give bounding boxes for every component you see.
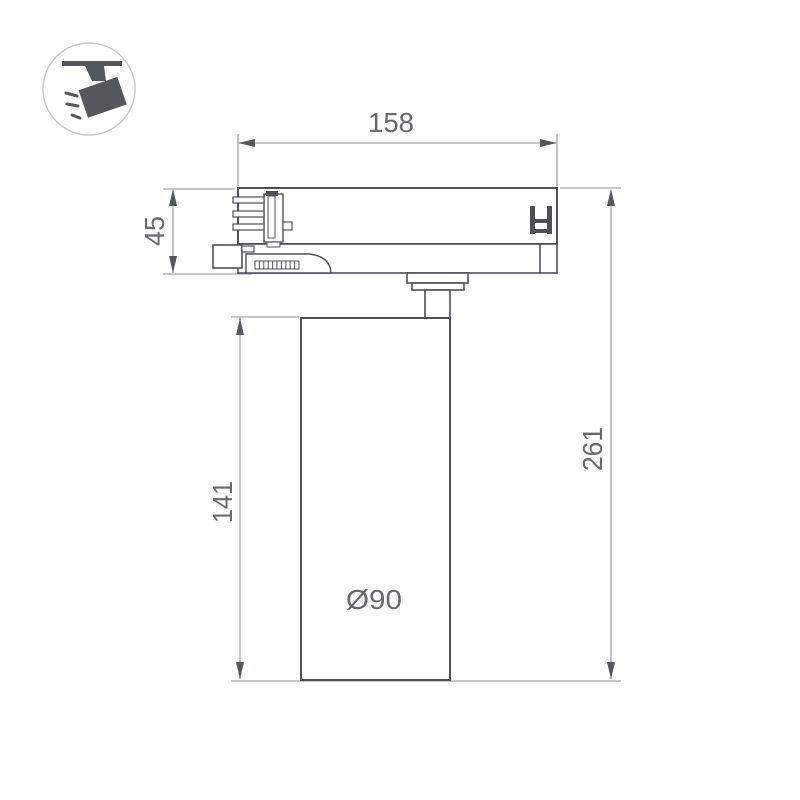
- technical-drawing: 158 45 141 261 Ø90: [0, 0, 800, 800]
- dim-label-total-height: 261: [577, 427, 608, 471]
- drawing-page: 158 45 141 261 Ø90: [0, 0, 800, 800]
- track-spotlight-icon: [43, 43, 135, 135]
- contact-cap: [266, 191, 278, 196]
- contact-prong-3: [233, 224, 264, 230]
- track-adapter: [213, 188, 557, 273]
- contact-prong-1: [233, 197, 264, 203]
- stem-flange-lower: [412, 283, 464, 290]
- stem-neck: [425, 290, 450, 318]
- arrow-158-right: [540, 139, 557, 147]
- contact-foot: [267, 242, 280, 247]
- pivot-stem: [407, 273, 468, 318]
- dim-label-body-diameter: Ø90: [346, 584, 402, 615]
- adapter-latch-notch: [242, 246, 254, 252]
- adapter-latch-box: [213, 245, 242, 268]
- arrow-141-top: [236, 318, 244, 335]
- arrow-261-bottom: [607, 662, 615, 679]
- arrow-141-bottom: [236, 662, 244, 679]
- contact-prong-2: [233, 211, 264, 217]
- arrow-158-left: [238, 139, 255, 147]
- arrow-261-top: [607, 189, 615, 206]
- arrow-45-bottom: [169, 256, 177, 273]
- dim-label-adapter-width: 158: [368, 107, 414, 138]
- contact-post: [268, 196, 275, 238]
- dim-label-body-height: 141: [207, 481, 238, 523]
- icon-track-rail: [62, 61, 122, 66]
- contact-tab: [283, 222, 292, 230]
- adapter-main-box: [238, 188, 557, 244]
- lamp-body-cylinder: [301, 318, 450, 680]
- stem-flange-upper: [407, 273, 468, 283]
- dim-label-adapter-height: 45: [139, 216, 170, 246]
- arrow-45-top: [169, 189, 177, 206]
